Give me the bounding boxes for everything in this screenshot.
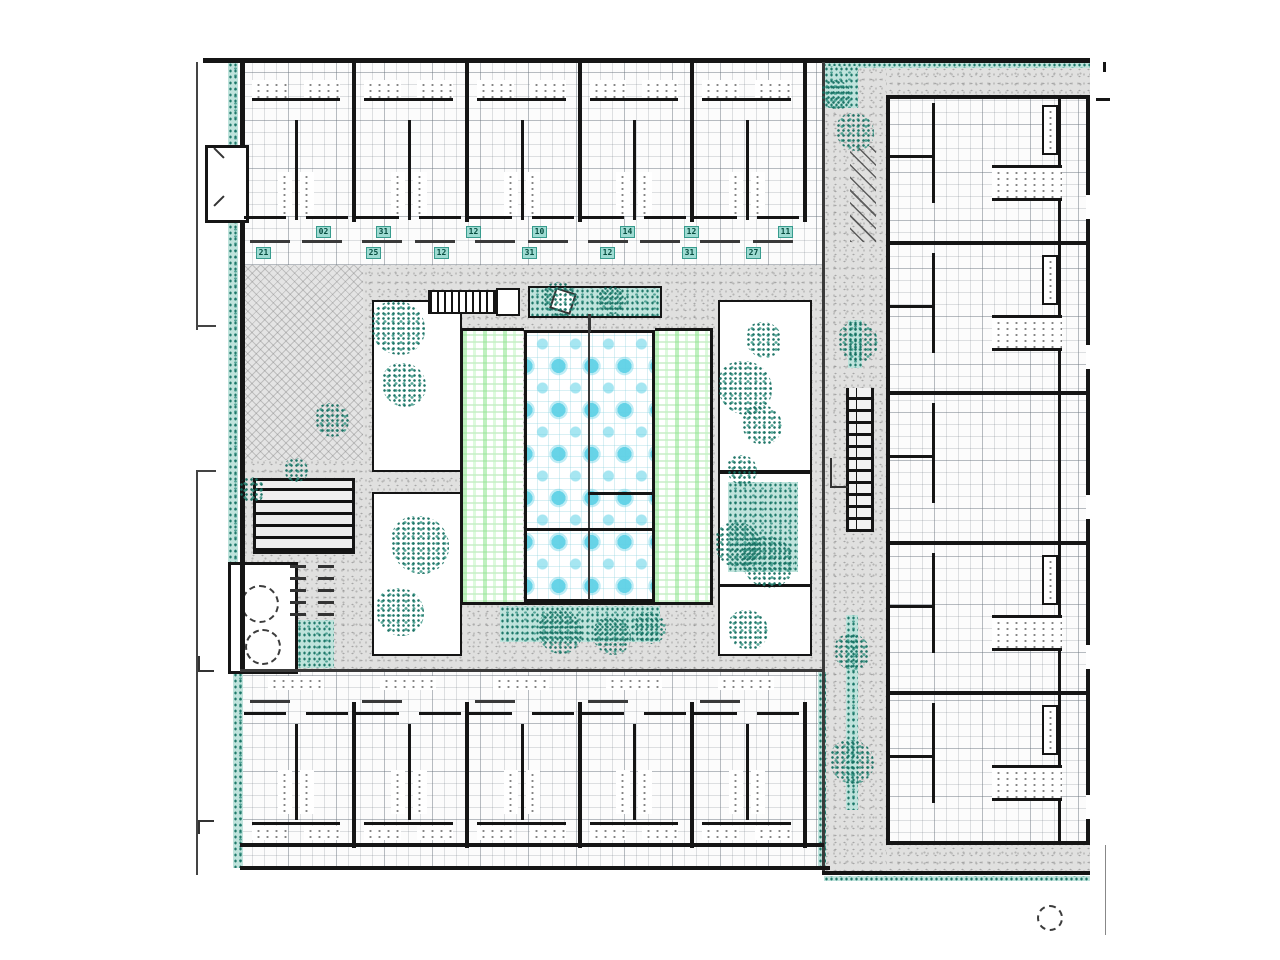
room-number-tag: 12 xyxy=(684,226,699,238)
room-number-tag: 31 xyxy=(682,247,697,259)
room-number-tags: 0231121014121121251231123127 xyxy=(0,0,1280,960)
room-number-tag: 11 xyxy=(778,226,793,238)
room-number-tag: 27 xyxy=(746,247,761,259)
room-number-tag: 31 xyxy=(376,226,391,238)
room-number-tag: 02 xyxy=(316,226,331,238)
room-number-tag: 10 xyxy=(532,226,547,238)
room-number-tag: 14 xyxy=(620,226,635,238)
room-number-tag: 31 xyxy=(522,247,537,259)
room-number-tag: 21 xyxy=(256,247,271,259)
room-number-tag: 25 xyxy=(366,247,381,259)
floorplan-canvas: 0231121014121121251231123127 xyxy=(0,0,1280,960)
room-number-tag: 12 xyxy=(600,247,615,259)
room-number-tag: 12 xyxy=(434,247,449,259)
room-number-tag: 12 xyxy=(466,226,481,238)
